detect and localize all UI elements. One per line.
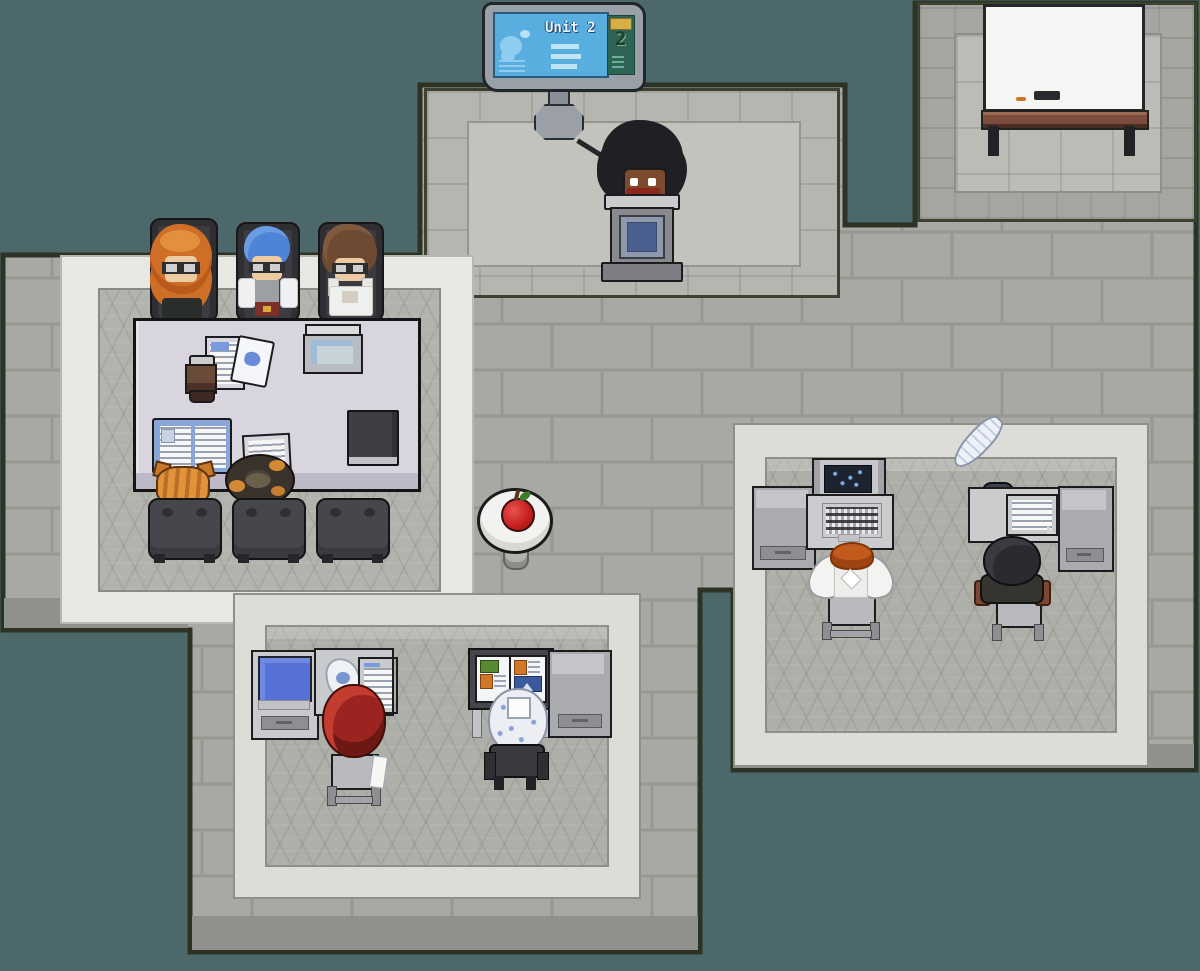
- character-student-blue[interactable]: [238, 226, 296, 322]
- sign-frame: Unit 2 2: [482, 2, 646, 92]
- chair-leg-right: [1034, 624, 1044, 641]
- page-figure: [161, 429, 175, 443]
- keyboard[interactable]: [822, 503, 882, 538]
- whiteboard-leg-right: [1124, 126, 1135, 156]
- drawer-handle: [1077, 553, 1091, 556]
- virtual-office-map: { "sign": { "title": "Unit 2", "badge": …: [0, 0, 1200, 971]
- whiteboard-leg-left: [988, 126, 999, 156]
- chair-foot-right: [204, 554, 215, 563]
- chair-knob-right: [196, 508, 207, 517]
- desk-chair-south-2[interactable]: [484, 744, 548, 792]
- lens-left: [166, 264, 177, 272]
- podium-base: [601, 262, 683, 282]
- pic-green: [480, 660, 499, 673]
- orange-hair-top: [830, 542, 874, 570]
- character-red-hair[interactable]: [322, 684, 386, 758]
- shirt: [255, 280, 279, 302]
- meeting-chair-empty-1[interactable]: [148, 498, 222, 560]
- drawer-handle: [276, 721, 292, 724]
- sign-doodle-lines: [499, 60, 525, 72]
- calico-center-hole: [245, 470, 271, 488]
- drawer-handle: [572, 719, 588, 722]
- eye-right: [648, 178, 656, 186]
- whiteboard-marker[interactable]: [1016, 97, 1026, 101]
- coffee-cup[interactable]: [185, 355, 217, 401]
- sign-text-row2: [551, 54, 581, 59]
- chair-knob-right: [364, 508, 375, 517]
- round-side-table[interactable]: [477, 488, 549, 570]
- monitor-bezel: [258, 700, 310, 710]
- calico-patch-3: [271, 486, 285, 496]
- chair-leg-right: [526, 776, 536, 790]
- pic-orange-right: [514, 660, 527, 675]
- folded-corner: [1047, 525, 1056, 534]
- cup-base: [189, 390, 215, 403]
- whiteboard[interactable]: [981, 4, 1147, 164]
- sign-badge: 2: [615, 28, 626, 50]
- bib-pocket: [342, 291, 358, 303]
- character-angel-wings[interactable]: [808, 540, 892, 604]
- return-top: [756, 490, 808, 508]
- belt-buckle: [263, 306, 271, 312]
- whiteboard-surface[interactable]: [983, 4, 1145, 112]
- laptop-screen: [311, 340, 353, 364]
- sign-side-panel: 2: [607, 15, 635, 75]
- unit-sign[interactable]: Unit 2 2: [482, 0, 642, 142]
- lens-left: [253, 264, 263, 271]
- lens-right: [184, 264, 195, 272]
- blue-monitor[interactable]: [258, 656, 312, 702]
- glasses: [162, 262, 200, 274]
- character-dark-hooded[interactable]: [974, 536, 1048, 604]
- hood-head: [983, 536, 1041, 586]
- pic-lines-left: [494, 675, 506, 687]
- podium-body: [610, 207, 674, 267]
- lens-right: [270, 264, 280, 271]
- memo-ink-blob: [243, 351, 261, 368]
- chair-crossbar: [830, 630, 872, 638]
- whiteboard-eraser[interactable]: [1034, 91, 1060, 100]
- glasses: [249, 262, 285, 273]
- apple[interactable]: [501, 498, 535, 532]
- sign-title: Unit 2: [545, 20, 596, 36]
- big-red-hair: [322, 684, 386, 758]
- orange-hair-shine: [160, 230, 200, 252]
- chair-foot-left: [238, 554, 249, 563]
- return-drawer[interactable]: [1066, 548, 1104, 562]
- coat-shoulder-right: [280, 278, 298, 308]
- chair-leg-left: [992, 624, 1002, 641]
- laptop[interactable]: [303, 324, 361, 374]
- chair-foot-right: [288, 554, 299, 563]
- coat-shoulder-left: [238, 278, 256, 308]
- meeting-chair-empty-3[interactable]: [316, 498, 390, 560]
- sign-doodle-planet: [500, 36, 522, 56]
- desk-chair-south-1[interactable]: [327, 754, 379, 806]
- reading-desk-return[interactable]: [548, 650, 612, 738]
- room-east: [733, 423, 1149, 767]
- scrap-ink: [335, 671, 351, 685]
- torso: [162, 298, 202, 320]
- character-student-brown[interactable]: [320, 224, 380, 320]
- meeting-chair-empty-2[interactable]: [232, 498, 306, 560]
- lens-right: [353, 265, 363, 272]
- return-top: [1062, 490, 1106, 510]
- computer-screen: [824, 465, 872, 493]
- belt: [255, 302, 279, 316]
- podium-panel: [619, 215, 665, 259]
- chair-arm-right: [537, 752, 549, 780]
- podium[interactable]: [604, 194, 680, 286]
- chair-crossbar: [335, 796, 373, 804]
- return-drawer[interactable]: [558, 714, 602, 728]
- chair-leg-left: [494, 776, 504, 790]
- wall-face-south: [192, 916, 698, 950]
- chair-knob-left: [330, 508, 341, 517]
- chair-foot-left: [322, 554, 333, 563]
- document-header: [211, 342, 229, 351]
- sign-pole-base: [534, 104, 584, 140]
- chair-foot-right: [372, 554, 383, 563]
- calico-patch-1: [229, 480, 245, 492]
- sign-text-row1: [551, 44, 579, 49]
- eye-left: [630, 178, 638, 186]
- return-top: [552, 654, 604, 674]
- podium-screen: [627, 222, 657, 252]
- chair-knob-right: [280, 508, 291, 517]
- drawer-handle: [775, 551, 791, 554]
- lens-left: [336, 265, 346, 272]
- laptop-body: [303, 334, 363, 374]
- monitor-desk-side[interactable]: [251, 650, 319, 740]
- hair-top-square: [507, 697, 531, 719]
- chair-knob-left: [246, 508, 257, 517]
- character-student-orange[interactable]: [150, 222, 214, 322]
- writing-desk-return[interactable]: [1058, 486, 1114, 572]
- pic-lines-right: [528, 661, 540, 673]
- sign-text-row3: [551, 64, 577, 69]
- return-drawer[interactable]: [760, 546, 806, 560]
- glasses: [332, 263, 368, 274]
- side-drawer[interactable]: [261, 716, 309, 730]
- dark-notebook[interactable]: [347, 410, 399, 466]
- report-header: [364, 663, 380, 667]
- calico-patch-2: [269, 460, 285, 471]
- chair-foot-left: [154, 554, 165, 563]
- writing-desk[interactable]: [968, 487, 1060, 543]
- room-south: [233, 593, 641, 899]
- overall-bib: [329, 286, 373, 316]
- sign-screen: Unit 2: [493, 12, 609, 78]
- sign-side-marks: [612, 56, 624, 68]
- letter-paper[interactable]: [1006, 494, 1058, 536]
- chair-knob-left: [162, 508, 173, 517]
- pic-orange-left: [480, 674, 493, 689]
